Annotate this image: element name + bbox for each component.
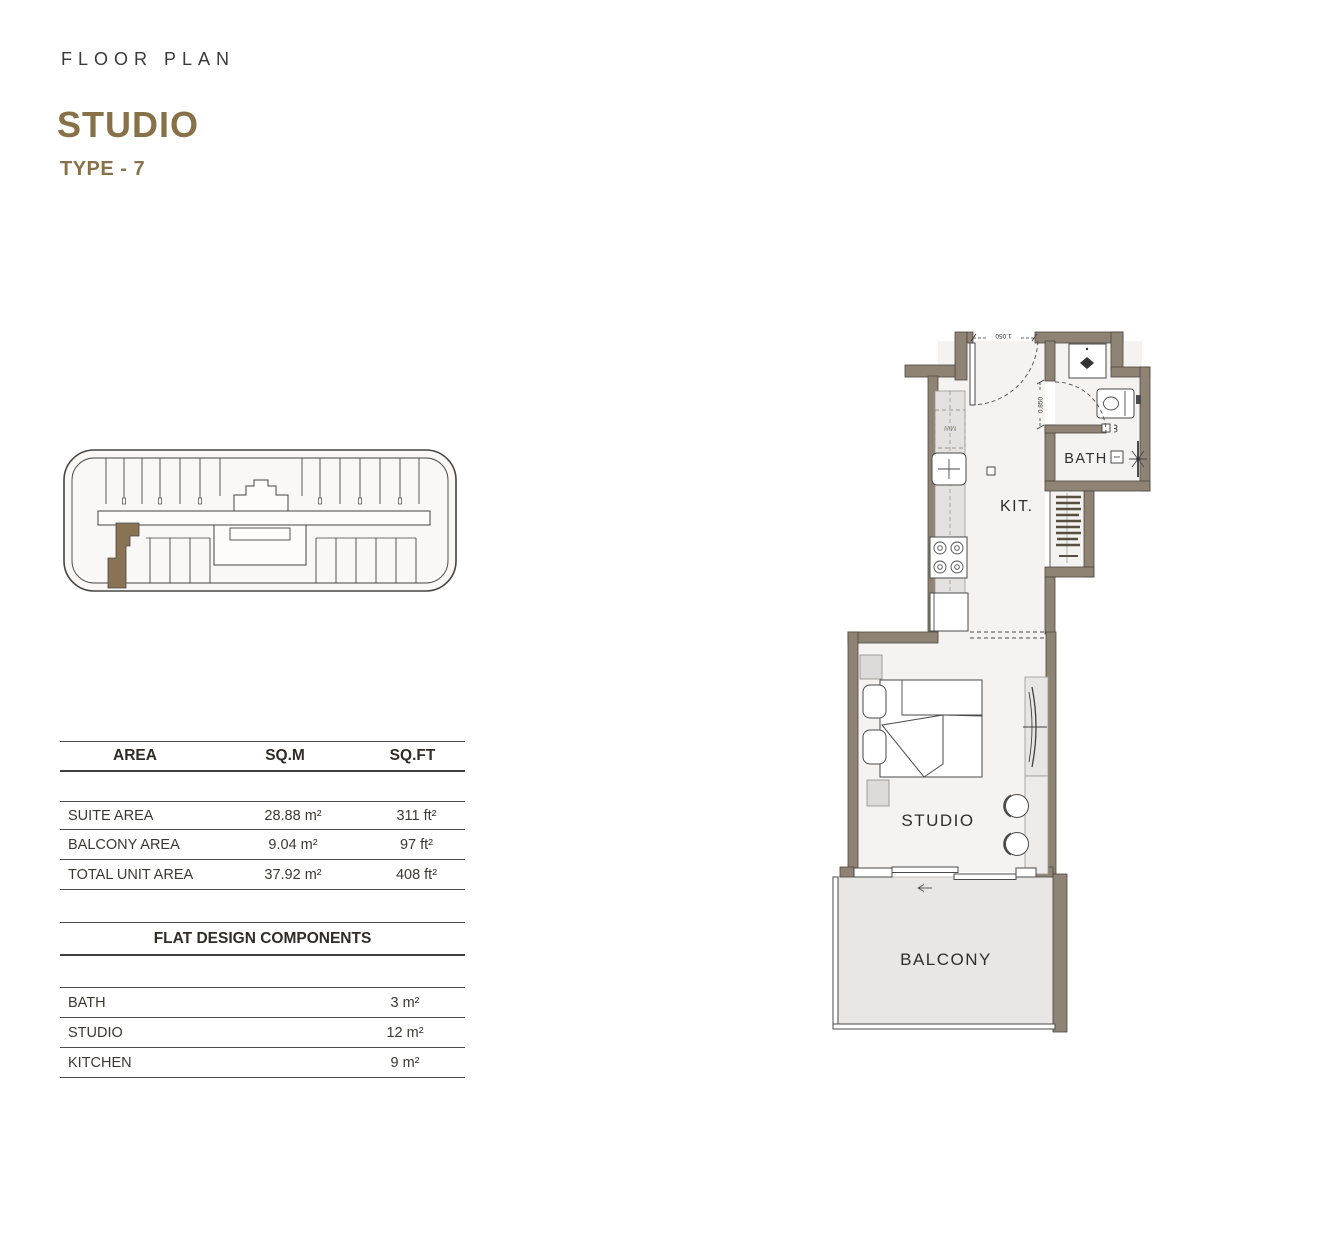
- door-leaf: [970, 343, 975, 405]
- row-value: 12 m²: [345, 1025, 465, 1041]
- stove-icon: [930, 537, 967, 578]
- floor-plan: MW: [820, 325, 1180, 1040]
- nightstand: [867, 780, 889, 806]
- row-label: SUITE AREA: [60, 808, 218, 824]
- entrance-dimension: 1.050: [971, 332, 1037, 341]
- outlet-icon: [987, 467, 995, 475]
- table-row: TOTAL UNIT AREA 37.92 m² 408 ft²: [60, 860, 465, 890]
- svg-text:MW: MW: [943, 424, 956, 431]
- svg-text:1.050: 1.050: [995, 332, 1012, 339]
- components-table: FLAT DESIGN COMPONENTS BATH 3 m² STUDIO …: [60, 922, 465, 1078]
- table-row: BALCONY AREA 9.04 m² 97 ft²: [60, 830, 465, 860]
- area-table: AREA SQ.M SQ.FT SUITE AREA 28.88 m² 311 …: [60, 741, 465, 890]
- row-sqm: 37.92 m²: [218, 867, 368, 883]
- washbasin-icon: [1069, 344, 1106, 378]
- tv-console: [1023, 677, 1048, 776]
- pillow: [863, 730, 886, 764]
- row-label: KITCHEN: [60, 1055, 345, 1071]
- table-row: STUDIO 12 m²: [60, 1018, 465, 1048]
- row-sqft: 97 ft²: [368, 837, 465, 853]
- row-sqm: 9.04 m²: [218, 837, 368, 853]
- nightstand: [860, 655, 882, 679]
- brochure-page: FLOOR PLAN STUDIO TYPE - 7: [0, 0, 1338, 1238]
- row-sqft: 311 ft²: [368, 808, 465, 824]
- page-title: STUDIO: [57, 104, 199, 146]
- balcony-railing: [833, 877, 838, 1029]
- building-key-plan: [62, 448, 460, 594]
- row-sqft: 408 ft²: [368, 867, 465, 883]
- row-label: TOTAL UNIT AREA: [60, 867, 218, 883]
- fridge-icon: [930, 593, 968, 631]
- sqm-col-header: SQ.M: [210, 747, 360, 765]
- stool-icon: [1004, 795, 1028, 818]
- area-table-header: AREA SQ.M SQ.FT: [60, 741, 465, 772]
- bed-icon: [863, 680, 982, 777]
- row-label: BATH: [60, 995, 345, 1011]
- bath-label: BATH: [1064, 451, 1108, 467]
- area-table-spacer: [60, 772, 465, 802]
- components-table-title: FLAT DESIGN COMPONENTS: [60, 922, 465, 956]
- area-col-header: AREA: [60, 747, 210, 765]
- unit-type-subtitle: TYPE - 7: [60, 158, 145, 181]
- floor-plan-eyebrow: FLOOR PLAN: [61, 49, 235, 70]
- kitchen-label: KIT.: [1000, 498, 1034, 515]
- bath-symbol-icon: [1111, 451, 1123, 463]
- sqft-col-header: SQ.FT: [360, 747, 465, 765]
- row-sqm: 28.88 m²: [218, 808, 368, 824]
- stool-icon: [1004, 833, 1028, 856]
- desk-counter: [1025, 776, 1048, 874]
- table-row: SUITE AREA 28.88 m² 311 ft²: [60, 802, 465, 830]
- flush-plate-icon: [1136, 395, 1141, 404]
- row-value: 3 m²: [345, 995, 465, 1011]
- svg-text:0.850: 0.850: [1038, 396, 1045, 413]
- pillow: [863, 685, 886, 718]
- row-value: 9 m²: [345, 1055, 465, 1071]
- row-label: BALCONY AREA: [60, 837, 218, 853]
- row-label: STUDIO: [60, 1025, 345, 1041]
- toilet-icon: [1097, 389, 1134, 418]
- table-row: KITCHEN 9 m²: [60, 1048, 465, 1078]
- components-table-spacer: [60, 956, 465, 988]
- sink-icon: [932, 453, 966, 485]
- balcony-label: BALCONY: [900, 950, 992, 969]
- balcony-railing: [833, 1024, 1055, 1029]
- table-row: BATH 3 m²: [60, 988, 465, 1018]
- studio-label: STUDIO: [901, 811, 974, 830]
